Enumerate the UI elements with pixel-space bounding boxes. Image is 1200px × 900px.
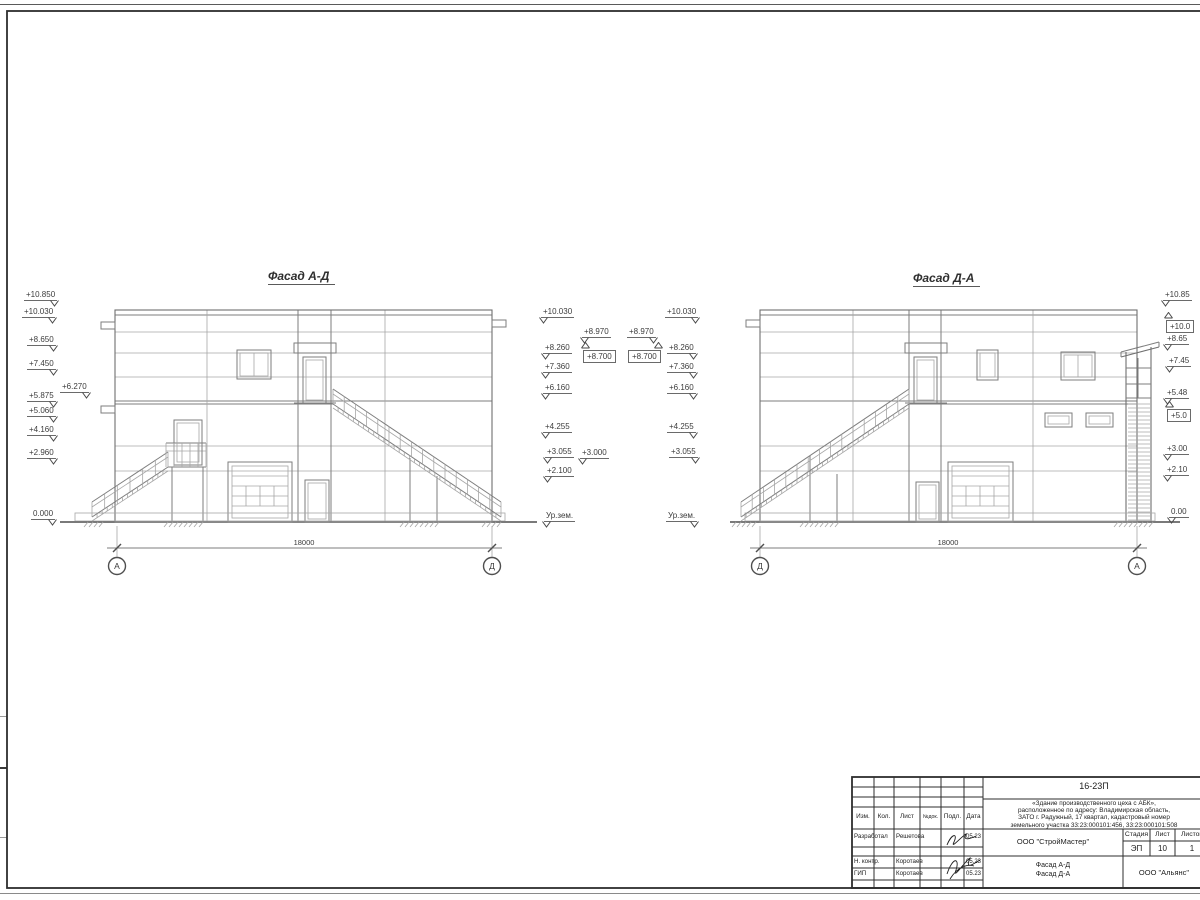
dimension-label: 18000 (938, 538, 959, 547)
row-date: 05.23 (964, 871, 983, 877)
elevation-mark: +8.970 (627, 327, 656, 338)
elevation-mark: +7.360 (543, 362, 572, 373)
elevation-mark: +5.0 (1167, 409, 1191, 422)
row-name: Решетова (896, 833, 924, 840)
elevation-mark: +3.055 (545, 447, 574, 458)
org2-name: ООО "Альянс" (1123, 868, 1200, 877)
sheet-number: 10 (1150, 844, 1175, 853)
elevation-mark: +10.030 (22, 307, 55, 318)
facade-right-title: Фасад Д-А (913, 271, 980, 287)
elevation-mark: +8.65 (1165, 334, 1189, 345)
col-header: №док. (920, 814, 941, 820)
elevation-mark: Ур.зем. (544, 511, 575, 522)
stage-value: ЭП (1123, 844, 1150, 853)
elevation-mark: +7.45 (1167, 356, 1191, 367)
elevation-mark: +2.10 (1165, 465, 1189, 476)
elevation-mark: +10.030 (665, 307, 698, 318)
drawing-sheet: { "drawing": { "facade_left": {"title": … (0, 0, 1200, 900)
subject: Фасад А-Д Фасад Д-А (983, 861, 1123, 879)
row-date: 05.23 (964, 834, 983, 840)
elevation-mark: +6.270 (60, 382, 89, 393)
stage-label: Стадия (1123, 831, 1150, 838)
elevation-mark: +8.970 (582, 327, 611, 338)
sheet-label: Лист (1150, 831, 1175, 838)
elevation-mark: +8.650 (27, 335, 56, 346)
facade-left-title: Фасад А-Д (268, 269, 335, 285)
elevation-mark: +8.260 (667, 343, 696, 354)
doc-number: 16-23П (983, 781, 1200, 791)
axis-letter: А (1134, 561, 1140, 571)
elevation-mark: +8.700 (583, 350, 616, 363)
elevation-mark: +3.055 (669, 447, 698, 458)
elevation-mark: 0.00 (1169, 507, 1189, 518)
facade-linework (60, 310, 1180, 557)
subject-line: Фасад А-Д (983, 861, 1123, 870)
row-role: Н. контр. (854, 858, 880, 865)
elevation-mark: +2.100 (545, 466, 574, 477)
elevation-mark: +4.160 (27, 425, 56, 436)
sheets-total: 1 (1175, 844, 1200, 853)
row-name: Коротаев (896, 858, 923, 865)
row-date: 05.23 (964, 859, 983, 865)
row-name: Коротаев (896, 870, 923, 877)
col-header: Дата (964, 813, 983, 820)
elevation-mark: +7.450 (27, 359, 56, 370)
axis-letter: Д (757, 561, 763, 571)
elevation-mark: +5.48 (1165, 388, 1189, 399)
elevation-mark: +5.875 (27, 391, 56, 402)
row-role: ГИП (854, 870, 866, 877)
elevation-mark: +3.000 (580, 448, 609, 459)
sheets-label: Листов (1175, 831, 1200, 838)
elevation-mark: Ур.зем. (666, 511, 697, 522)
col-header: Лист (894, 813, 920, 820)
org-name: ООО "СтройМастер" (983, 837, 1123, 846)
description-line: земельного участка 33:23:000101:456, 33:… (983, 822, 1200, 829)
col-header: Изм. (852, 813, 874, 820)
elevation-mark: +10.85 (1163, 290, 1192, 301)
elevation-mark: +5.060 (27, 406, 56, 417)
subject-line: Фасад Д-А (983, 870, 1123, 879)
elevation-mark: +10.0 (1166, 320, 1194, 333)
elevation-mark: +4.255 (543, 422, 572, 433)
dimension-label: 18000 (294, 538, 315, 547)
elevation-mark: +10.030 (541, 307, 574, 318)
description-line: ЗАТО г. Радужный, 17 квартал, кадастровы… (983, 814, 1200, 821)
elevation-mark: +6.160 (543, 383, 572, 394)
col-header: Подл. (941, 813, 964, 820)
elevation-mark: +10.850 (24, 290, 57, 301)
elevation-mark: +8.700 (628, 350, 661, 363)
elevation-mark: +8.260 (543, 343, 572, 354)
axis-letter: Д (489, 561, 495, 571)
elevation-mark: +7.360 (667, 362, 696, 373)
project-description: «Здание производственного цеха с АБК», р… (983, 800, 1200, 829)
axis-letter: А (114, 561, 120, 571)
row-role: Разработал (854, 833, 888, 840)
elevation-mark: +3.00 (1165, 444, 1189, 455)
elevation-mark: +6.160 (667, 383, 696, 394)
elevation-mark: +4.255 (667, 422, 696, 433)
col-header: Кол. (874, 813, 894, 820)
elevation-mark: 0.000 (31, 509, 55, 520)
elevation-mark: +2.960 (27, 448, 56, 459)
